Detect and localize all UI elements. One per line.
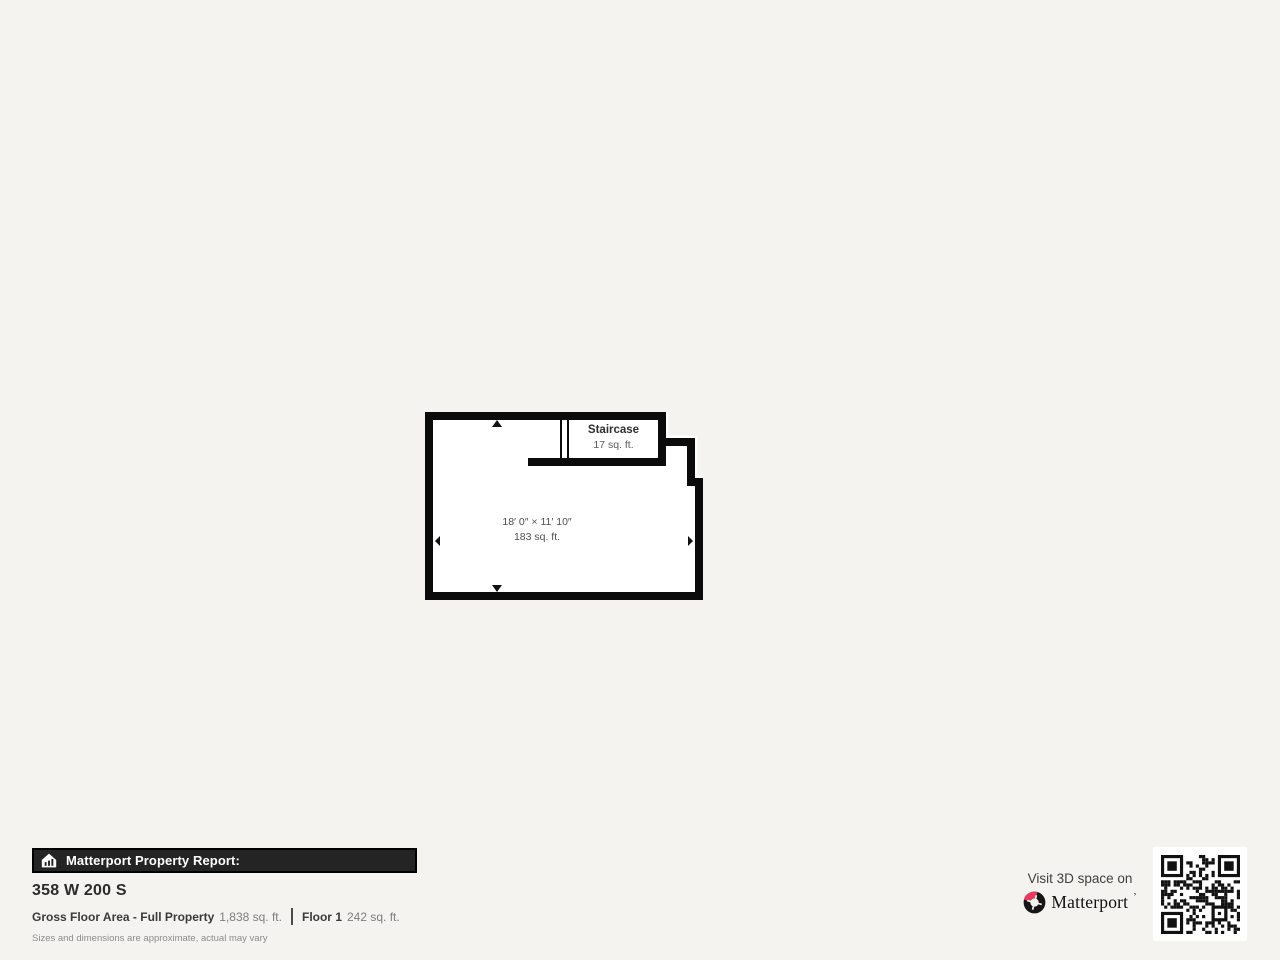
floor-plan: Staircase 17 sq. ft. 18′ 0″ × 11′ 10″ 18… bbox=[425, 412, 703, 600]
floor-area-stats: Gross Floor Area - Full Property 1,838 s… bbox=[32, 908, 432, 925]
report-header-bar: Matterport Property Report: bbox=[32, 848, 417, 873]
room-label: 18′ 0″ × 11′ 10″ 183 sq. ft. bbox=[437, 515, 637, 545]
property-address: 358 W 200 S bbox=[32, 882, 432, 900]
floor-plan-walls bbox=[425, 412, 703, 600]
promo-block: Visit 3D space on Matterport’ bbox=[1012, 871, 1148, 914]
qr-code-pattern bbox=[1161, 855, 1240, 934]
floor-label: Floor 1 bbox=[302, 910, 342, 924]
disclaimer-text: Sizes and dimensions are approximate, ac… bbox=[32, 933, 432, 944]
report-header-title: Matterport Property Report: bbox=[66, 853, 240, 868]
visit-3d-text: Visit 3D space on bbox=[1012, 871, 1148, 886]
brand-row: Matterport’ bbox=[1012, 891, 1148, 914]
gross-floor-area-label: Gross Floor Area - Full Property bbox=[32, 910, 214, 924]
room-dimensions: 18′ 0″ × 11′ 10″ bbox=[437, 515, 637, 530]
page: Staircase 17 sq. ft. 18′ 0″ × 11′ 10″ 18… bbox=[0, 0, 1280, 960]
qr-code bbox=[1153, 847, 1247, 941]
staircase-area: 17 sq. ft. bbox=[593, 438, 633, 453]
room-area: 183 sq. ft. bbox=[437, 530, 637, 545]
floor-value: 242 sq. ft. bbox=[347, 910, 400, 924]
house-report-icon bbox=[41, 853, 57, 869]
stats-divider bbox=[291, 908, 293, 925]
staircase-label: Staircase bbox=[588, 423, 639, 438]
gross-floor-area-value: 1,838 sq. ft. bbox=[219, 910, 282, 924]
matterport-wordmark: Matterport bbox=[1051, 892, 1128, 913]
report-footer: Matterport Property Report: 358 W 200 S … bbox=[32, 848, 432, 944]
staircase-room-label: Staircase 17 sq. ft. bbox=[569, 423, 658, 463]
trademark-mark: ’ bbox=[1133, 891, 1136, 905]
matterport-logo-icon bbox=[1023, 891, 1046, 914]
